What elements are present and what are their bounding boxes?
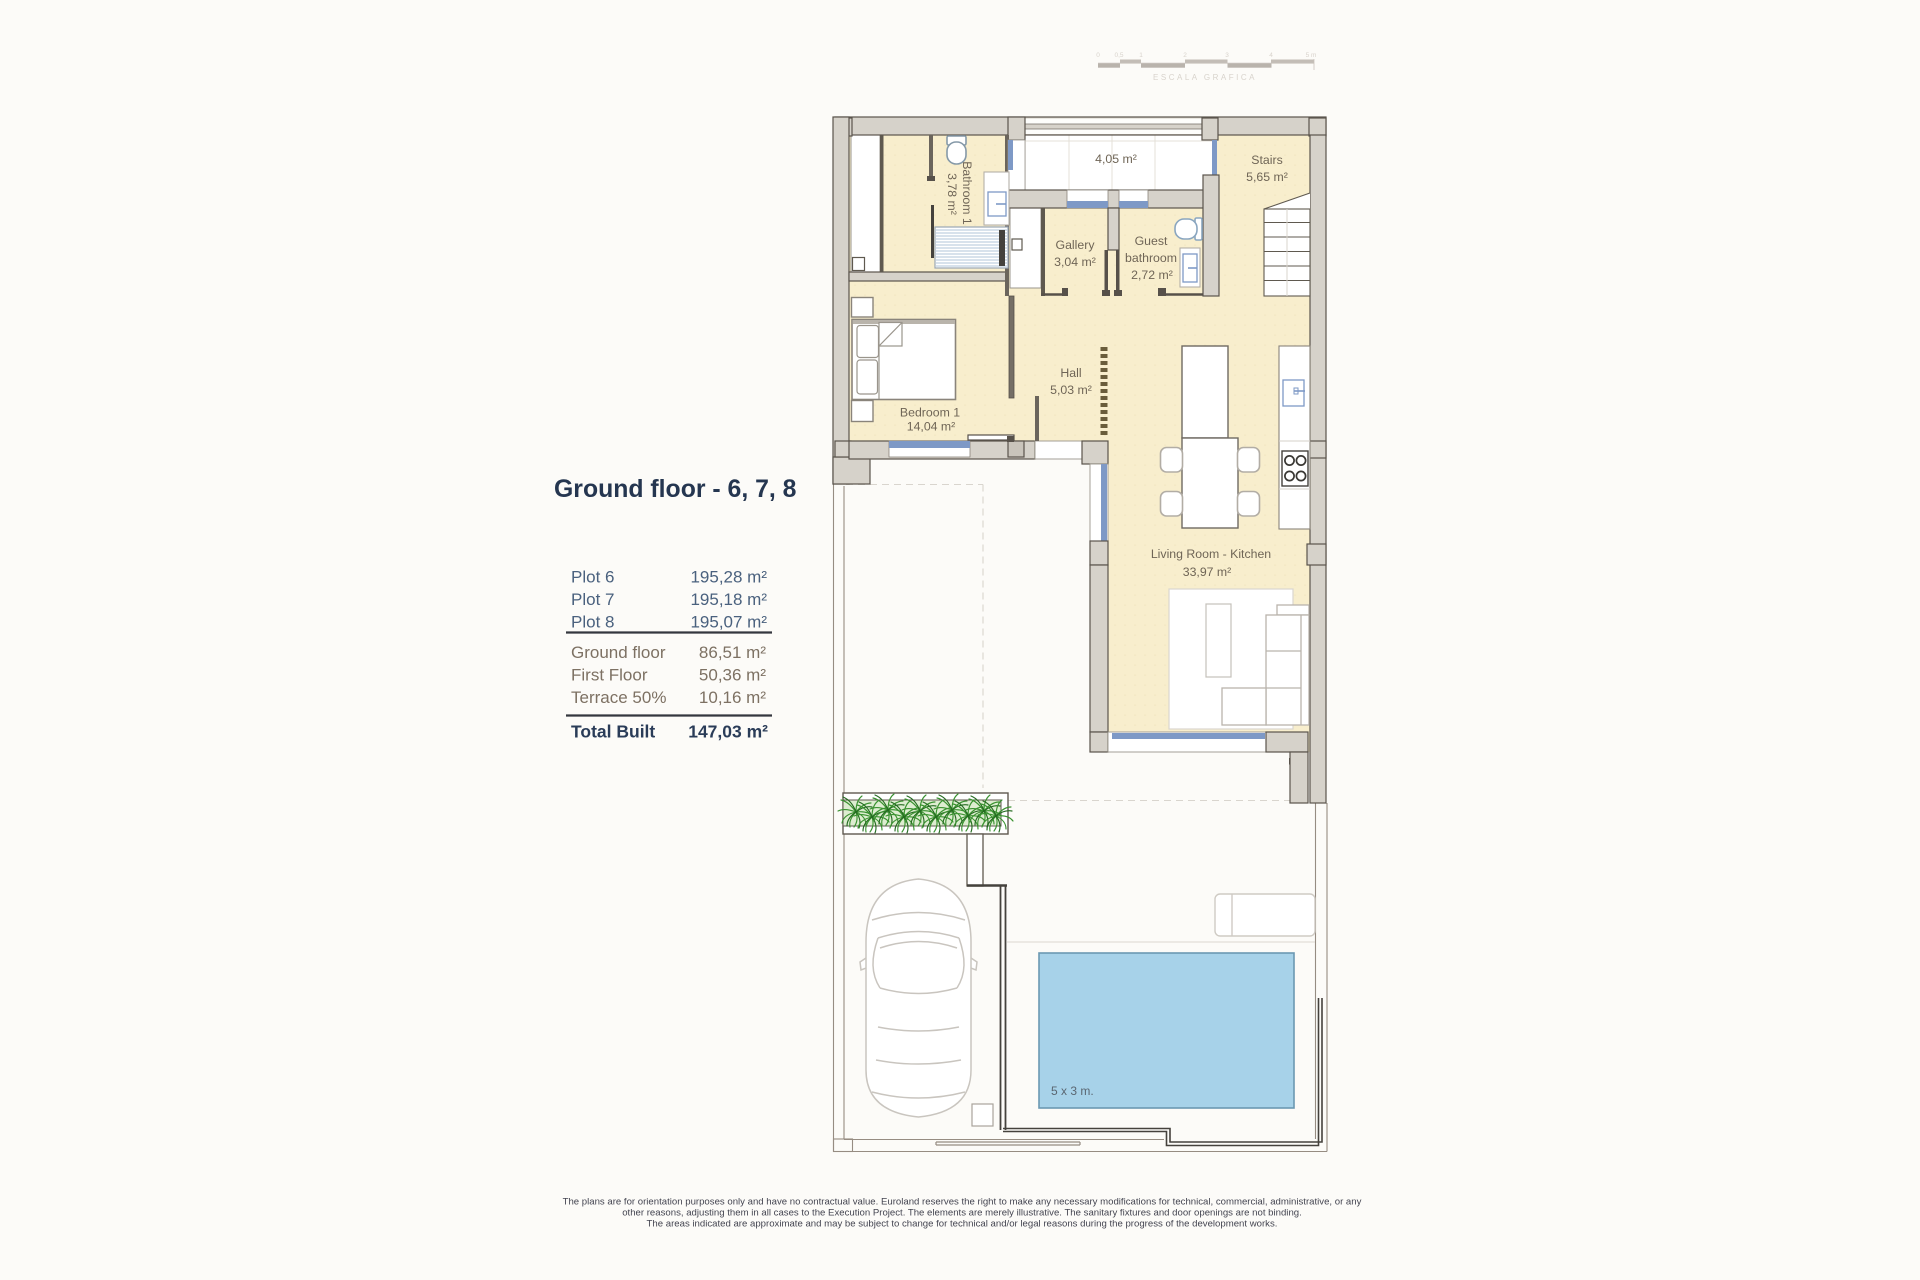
svg-text:5 m: 5 m [1306,52,1317,59]
svg-text:5 x 3 m.: 5 x 3 m. [1051,1084,1094,1098]
svg-text:33,97 m²: 33,97 m² [1183,565,1232,579]
svg-text:Stairs: Stairs [1251,153,1282,167]
svg-text:195,07 m²: 195,07 m² [690,613,767,632]
svg-text:Total Built: Total Built [571,722,655,742]
svg-text:Bedroom 1: Bedroom 1 [900,406,960,420]
svg-text:5,03 m²: 5,03 m² [1050,383,1092,397]
svg-text:other reasons, adjusting them: other reasons, adjusting them in all cas… [622,1208,1302,1219]
svg-text:2,72 m²: 2,72 m² [1131,268,1173,282]
svg-text:10,16 m²: 10,16 m² [699,688,766,707]
svg-text:The plans are for orientation: The plans are for orientation purposes o… [563,1197,1362,1208]
svg-text:Bathroom 1: Bathroom 1 [960,161,974,225]
svg-text:ESCALA GRAFICA: ESCALA GRAFICA [1153,73,1257,82]
svg-text:3: 3 [1225,52,1229,59]
svg-text:195,28 m²: 195,28 m² [690,568,767,587]
svg-text:0: 0 [1096,52,1100,59]
svg-text:14,04 m²: 14,04 m² [907,420,956,434]
svg-text:4,05 m²: 4,05 m² [1095,152,1137,166]
svg-text:The areas indicated are approx: The areas indicated are approximate and … [647,1219,1278,1230]
svg-text:147,03 m²: 147,03 m² [688,722,768,742]
svg-text:1: 1 [1139,52,1143,59]
svg-text:Living Room - Kitchen: Living Room - Kitchen [1151,547,1271,561]
svg-text:2: 2 [1183,52,1187,59]
svg-text:86,51 m²: 86,51 m² [699,643,766,662]
svg-text:Guest: Guest [1135,234,1168,248]
svg-text:Ground floor - 6, 7, 8: Ground floor - 6, 7, 8 [554,476,797,503]
svg-text:bathroom: bathroom [1125,251,1177,265]
svg-text:0,5: 0,5 [1114,52,1123,59]
svg-text:Plot 6: Plot 6 [571,568,614,587]
svg-text:4: 4 [1269,52,1273,59]
svg-text:Ground floor: Ground floor [571,643,666,662]
svg-text:Hall: Hall [1060,366,1081,380]
svg-text:Gallery: Gallery [1056,238,1096,252]
svg-text:3,78 m²: 3,78 m² [945,173,959,215]
svg-text:Terrace 50%: Terrace 50% [571,688,666,707]
svg-text:195,18 m²: 195,18 m² [690,590,767,609]
svg-text:First Floor: First Floor [571,666,648,685]
svg-text:Plot 8: Plot 8 [571,613,614,632]
svg-text:5,65 m²: 5,65 m² [1246,170,1288,184]
svg-text:3,04 m²: 3,04 m² [1054,255,1096,269]
svg-text:Plot 7: Plot 7 [571,590,614,609]
svg-text:50,36 m²: 50,36 m² [699,666,766,685]
